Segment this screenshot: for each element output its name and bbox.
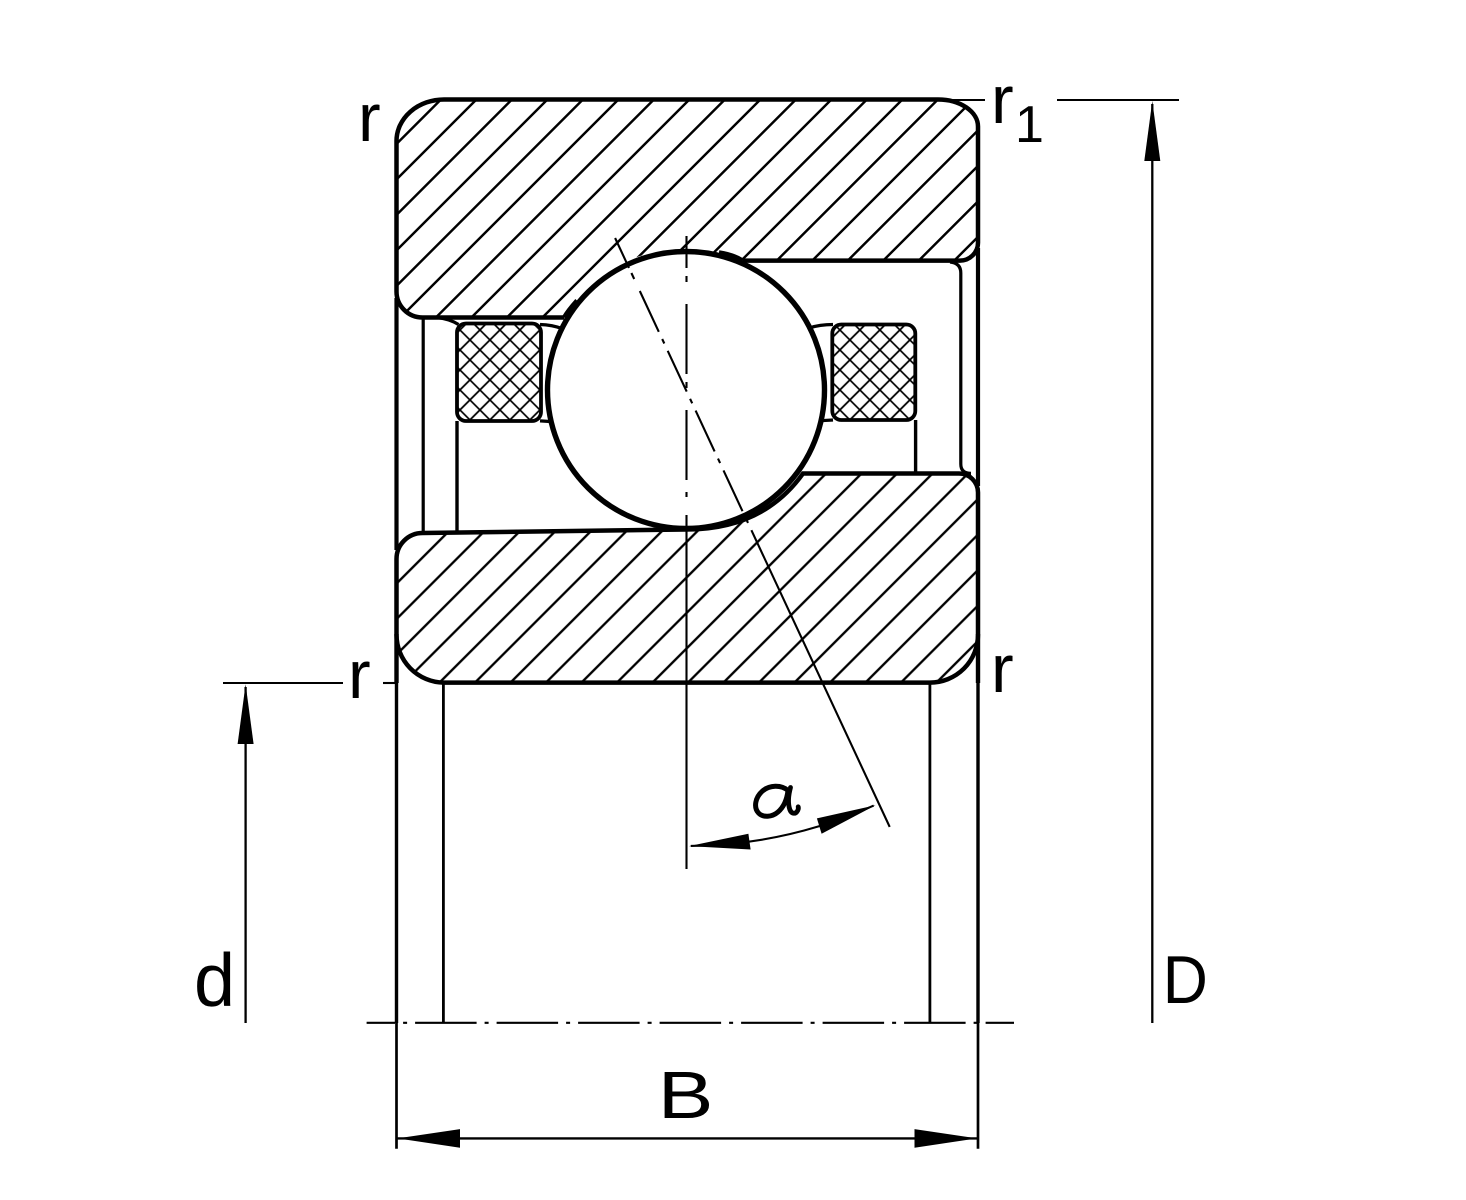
- svg-text:B: B: [658, 1058, 714, 1133]
- svg-text:r: r: [358, 80, 381, 156]
- svg-text:r: r: [991, 631, 1014, 707]
- svg-text:r: r: [348, 637, 371, 713]
- svg-text:d: d: [194, 938, 235, 1022]
- svg-text:D: D: [1163, 942, 1208, 1018]
- svg-text:r: r: [991, 62, 1014, 138]
- svg-text:1: 1: [1015, 96, 1044, 154]
